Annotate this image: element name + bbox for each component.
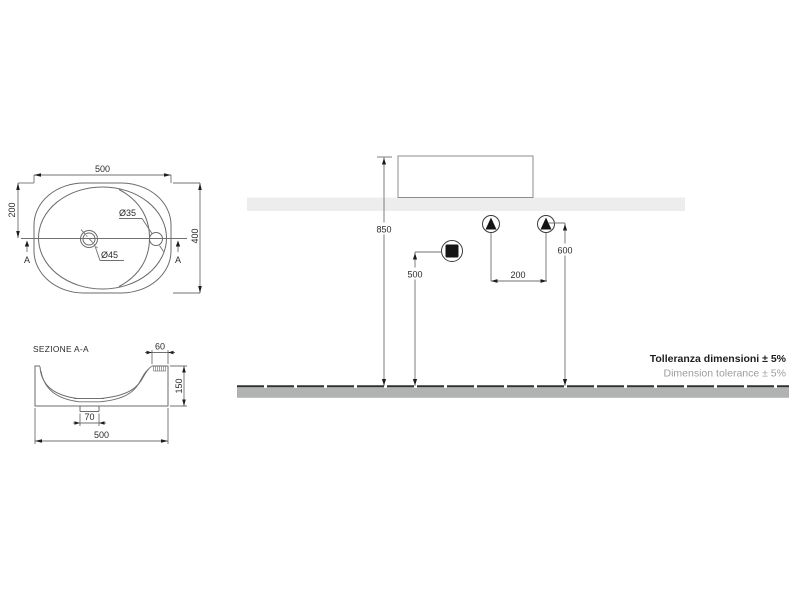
drain-outlet-icon [442,241,463,262]
label-drain-diameter: Ø45 [101,250,118,260]
section-profile [35,366,168,406]
svg-text:A: A [24,255,30,265]
basin-front [398,156,533,198]
section-marker-a-right: A [175,241,181,266]
wall-shelf [247,198,685,212]
tolerance-notes: Tolleranza dimensioni ± 5% Dimension tol… [650,353,787,380]
dim-drain-height: 500 [403,252,441,386]
svg-text:500: 500 [94,430,109,440]
dim-top-offset: 200 [7,183,34,238]
section-bowl-surface [40,367,152,399]
section-marker-a-left: A [24,241,30,266]
dim-ledge: 60 [145,342,175,365]
basin-inner-edge [119,190,150,287]
svg-text:850: 850 [376,225,391,235]
section-drain-stub [74,399,104,412]
technical-drawing: Ø35 Ø45 500 200 [0,0,800,600]
dim-section-width: 500 [35,408,168,444]
water-supply-icon-left [483,216,500,233]
dim-drain-width: 70 [73,412,106,426]
tap-hole [150,233,164,252]
basin-outline [34,183,171,293]
floor-band [237,388,789,398]
tolerance-note-secondary: Dimension tolerance ± 5% [664,368,787,380]
section-title: SEZIONE A-A [33,344,89,354]
svg-text:150: 150 [174,378,184,393]
drawing-sheet: Ø35 Ø45 500 200 [0,0,800,600]
drain-hole [81,230,98,249]
water-supply-icon-right [538,216,555,233]
section-shell [41,369,149,402]
top-view: Ø35 Ø45 500 200 [7,164,202,293]
svg-text:60: 60 [155,342,165,352]
svg-text:400: 400 [190,228,200,243]
svg-text:70: 70 [84,412,94,422]
svg-text:500: 500 [407,270,422,280]
dim-top-width: 500 [34,164,171,183]
basin-rim [39,187,167,289]
dim-top-depth: 400 [173,183,202,293]
dim-supply-height: 600 [548,223,577,386]
dim-height: 150 [170,366,187,406]
svg-text:200: 200 [510,270,525,280]
svg-text:200: 200 [7,202,17,217]
svg-text:500: 500 [95,164,110,174]
dim-supply-spacing: 200 [491,233,547,283]
svg-text:600: 600 [557,246,572,256]
dim-rim-height: 850 [371,157,397,386]
label-tap-hole-diameter: Ø35 [119,208,136,218]
tolerance-note-primary: Tolleranza dimensioni ± 5% [650,353,787,365]
svg-text:A: A [175,255,181,265]
section-view: SEZIONE A-A [33,342,187,445]
section-hatch [154,366,167,371]
